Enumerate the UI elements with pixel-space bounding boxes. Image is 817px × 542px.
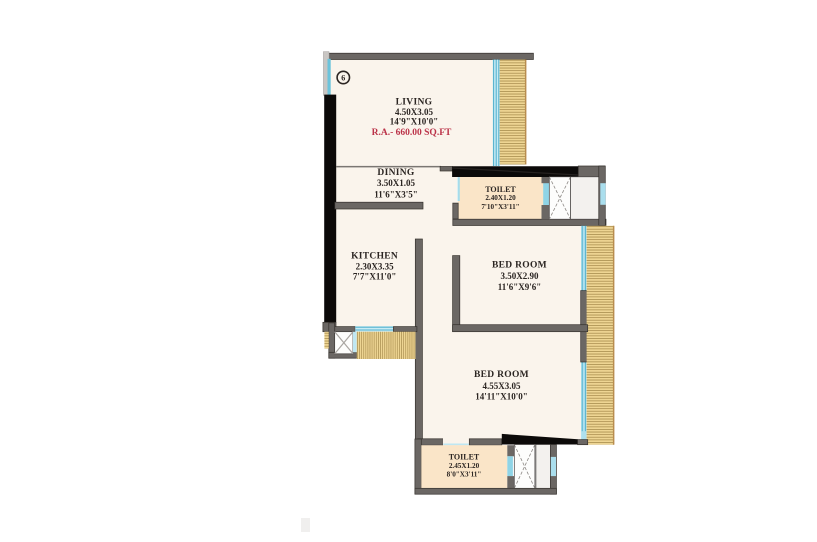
svg-text:2.30X3.35: 2.30X3.35	[356, 261, 394, 271]
svg-text:BED ROOM: BED ROOM	[474, 370, 529, 380]
svg-text:7'10"X3'11": 7'10"X3'11"	[481, 203, 519, 211]
svg-text:2.45X1.20: 2.45X1.20	[449, 462, 480, 470]
svg-text:14'11"X10'0": 14'11"X10'0"	[475, 391, 528, 401]
svg-text:BED ROOM: BED ROOM	[492, 260, 547, 270]
svg-text:KITCHEN: KITCHEN	[351, 252, 398, 262]
svg-text:DINING: DINING	[377, 168, 414, 178]
svg-text:R.A.- 660.00 SQ.FT: R.A.- 660.00 SQ.FT	[372, 128, 452, 138]
svg-text:11'6"X9'6": 11'6"X9'6"	[498, 282, 542, 292]
svg-text:8'0"X3'11": 8'0"X3'11"	[447, 470, 482, 478]
svg-text:3.50X2.90: 3.50X2.90	[501, 271, 539, 281]
svg-text:4.50X3.05: 4.50X3.05	[395, 107, 433, 117]
svg-text:6: 6	[341, 74, 345, 83]
svg-text:2.40X1.20: 2.40X1.20	[485, 194, 516, 202]
svg-text:14'9"X10'0": 14'9"X10'0"	[390, 117, 439, 127]
svg-text:TOILET: TOILET	[449, 453, 480, 462]
svg-text:3.50X1.05: 3.50X1.05	[377, 178, 415, 188]
svg-text:LIVING: LIVING	[396, 98, 433, 108]
svg-text:4.55X3.05: 4.55X3.05	[483, 381, 521, 391]
svg-text:11'6"X3'5": 11'6"X3'5"	[374, 189, 418, 199]
svg-text:7'7"X11'0": 7'7"X11'0"	[353, 272, 397, 282]
svg-text:TOILET: TOILET	[485, 185, 516, 194]
